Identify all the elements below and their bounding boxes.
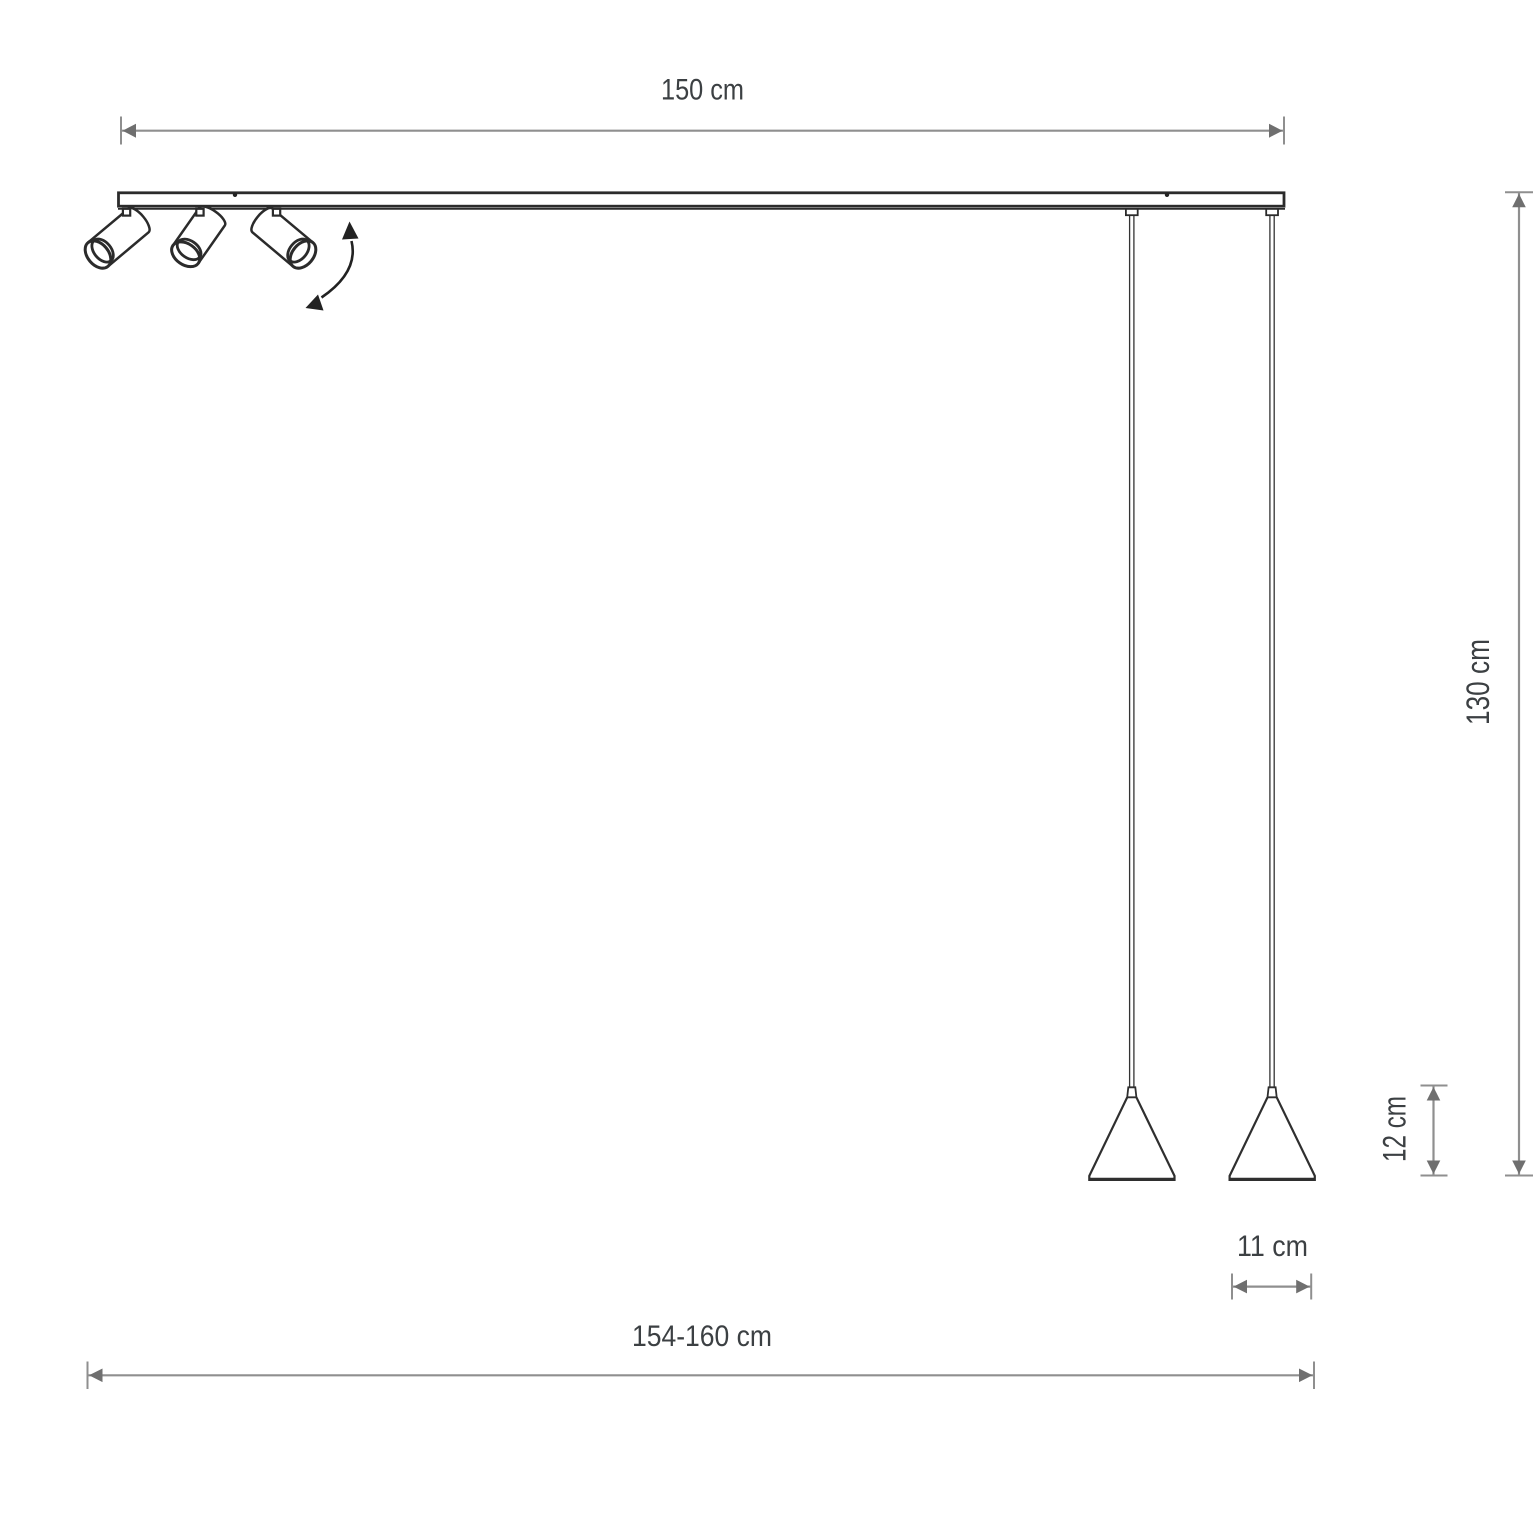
svg-text:150 cm: 150 cm bbox=[661, 74, 744, 107]
svg-text:154-160 cm: 154-160 cm bbox=[632, 1320, 772, 1353]
svg-text:11 cm: 11 cm bbox=[1237, 1230, 1308, 1263]
svg-text:12 cm: 12 cm bbox=[1377, 1096, 1413, 1162]
svg-text:130 cm: 130 cm bbox=[1460, 639, 1496, 725]
